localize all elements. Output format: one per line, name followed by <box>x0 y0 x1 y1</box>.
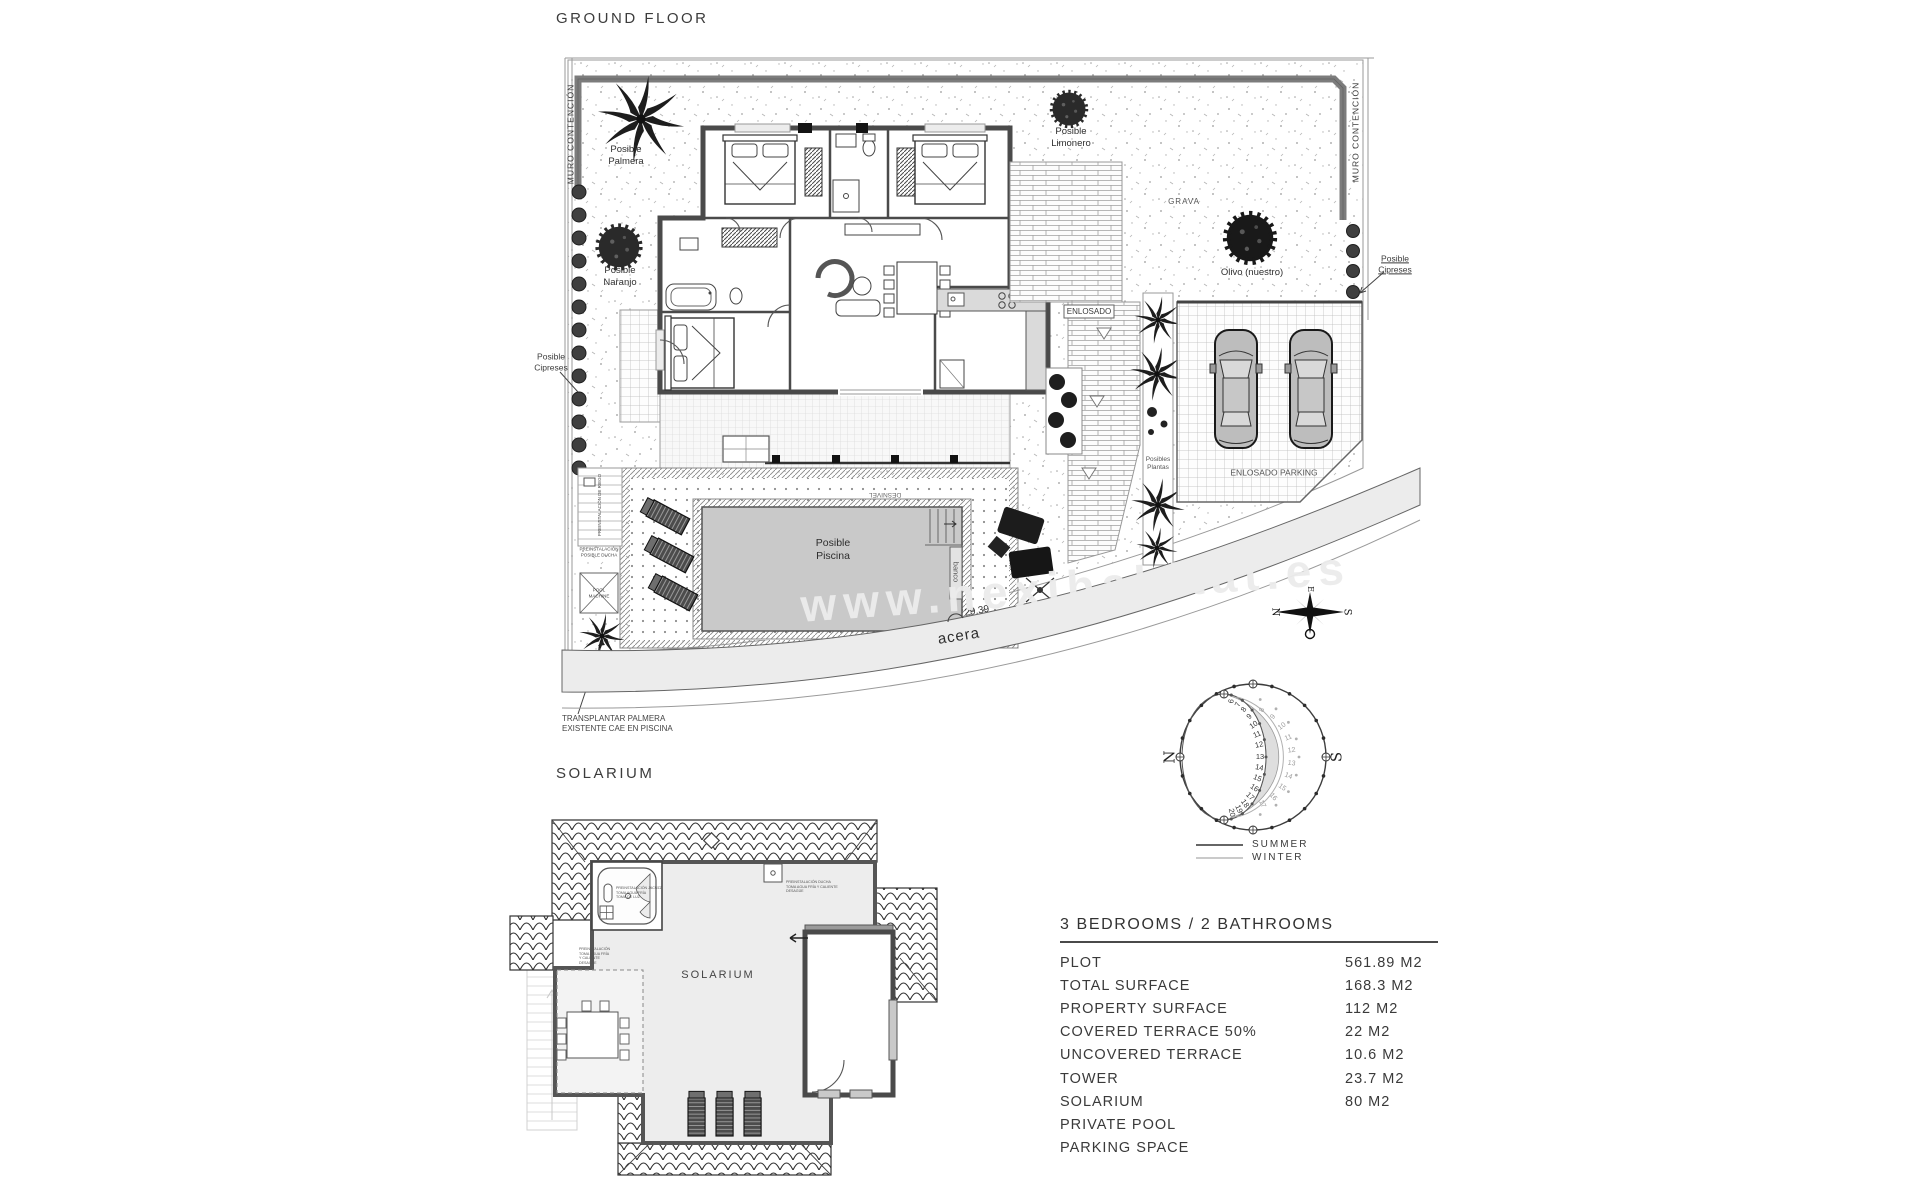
table-row: PRIVATE POOL <box>1060 1113 1438 1136</box>
house <box>656 123 1048 396</box>
sun-path-diagram: 67891011121314151617181920 8910111213141… <box>1176 680 1330 858</box>
tree-limonero-icon <box>1053 93 1086 126</box>
sliding-door <box>838 388 923 396</box>
solarium-plan <box>510 820 937 1175</box>
bed-2 <box>913 135 987 204</box>
window-lintel <box>856 123 868 133</box>
svg-text:14: 14 <box>1254 762 1264 772</box>
table-row: UNCOVERED TERRACE10.6 M2 <box>1060 1044 1438 1067</box>
window <box>656 330 664 370</box>
wardrobe <box>805 148 822 196</box>
wardrobe <box>722 228 777 247</box>
enlosado-box <box>1064 305 1114 318</box>
window <box>735 124 790 132</box>
window <box>925 124 985 132</box>
table-row: PLOT561.89 M2 <box>1060 951 1438 974</box>
table-row: PARKING SPACE <box>1060 1137 1438 1160</box>
window-lintel <box>798 123 812 133</box>
table-row: COVERED TERRACE 50%22 M2 <box>1060 1021 1438 1044</box>
legend-winter-label: WINTER <box>1252 852 1303 863</box>
legend-summer-label: SUMMER <box>1252 839 1308 850</box>
spec-rows: PLOT561.89 M2 TOTAL SURFACE168.3 M2 PROP… <box>1060 951 1438 1160</box>
floorplan-sheet: N E S 67891011121314151617181920 8910111… <box>0 0 1920 1200</box>
svg-text:13: 13 <box>1256 752 1264 761</box>
bed-1 <box>723 135 797 204</box>
wardrobe <box>897 148 915 196</box>
compass-n: N <box>1270 608 1281 617</box>
entrance-patio <box>620 310 660 422</box>
shower-point <box>764 864 782 882</box>
svg-text:12: 12 <box>1287 747 1296 755</box>
pergola-area <box>557 970 643 1093</box>
table-row: TOTAL SURFACE168.3 M2 <box>1060 974 1438 997</box>
table-row: TOWER23.7 M2 <box>1060 1067 1438 1090</box>
spec-table: 3 BEDROOMS / 2 BATHROOMS PLOT561.89 M2 T… <box>1060 916 1438 1160</box>
dining-table <box>897 262 937 314</box>
jacuzzi <box>592 862 662 930</box>
table-row: PROPERTY SURFACE112 M2 <box>1060 997 1438 1020</box>
solarium-loungers <box>688 1091 761 1136</box>
table-row: SOLARIUM80 M2 <box>1060 1090 1438 1113</box>
tree-olivo-icon <box>1227 215 1274 262</box>
covered-terrace <box>660 392 1010 468</box>
bed-3 <box>665 316 734 390</box>
cipreses-right-leader <box>1360 272 1384 293</box>
tower-room <box>805 925 897 1098</box>
svg-text:13: 13 <box>1287 760 1296 768</box>
tree-naranjo-icon <box>599 227 640 268</box>
compass-s: S <box>1342 609 1353 616</box>
car-2 <box>1285 330 1337 448</box>
planter-box <box>1046 368 1082 454</box>
spec-heading: 3 BEDROOMS / 2 BATHROOMS <box>1060 916 1438 943</box>
car-1 <box>1210 330 1262 448</box>
